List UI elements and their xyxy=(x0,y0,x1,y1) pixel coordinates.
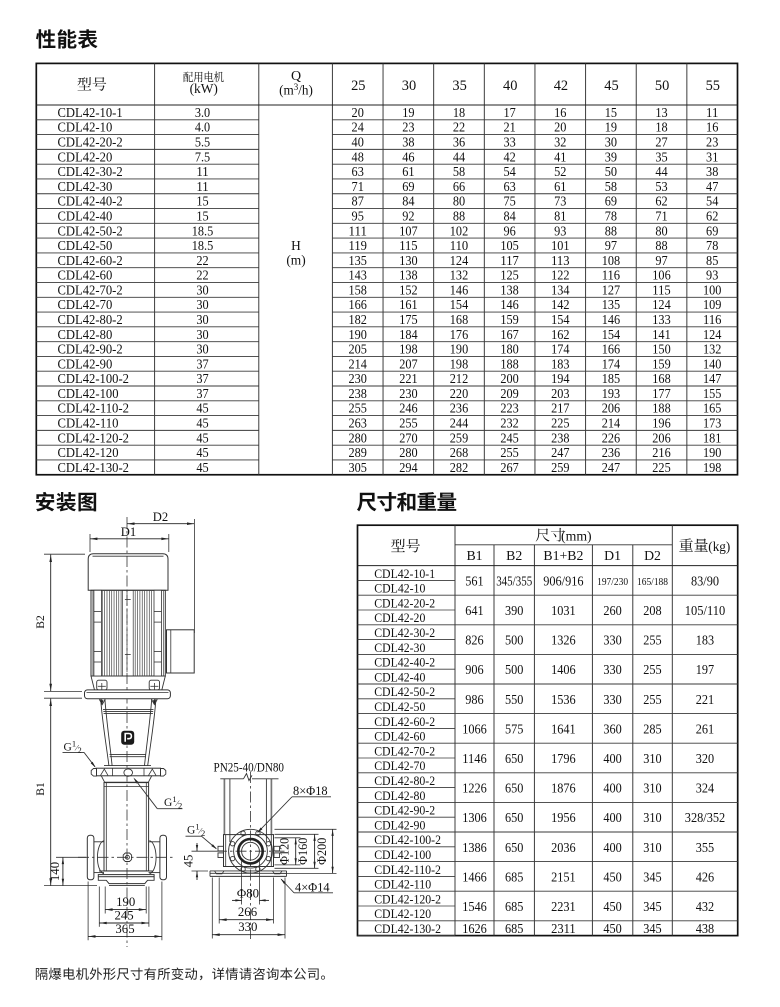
svg-text:52: 52 xyxy=(554,164,566,179)
svg-text:130: 130 xyxy=(399,253,418,268)
svg-text:73: 73 xyxy=(554,194,566,209)
svg-text:78: 78 xyxy=(706,238,718,253)
svg-text:61: 61 xyxy=(554,179,566,194)
svg-text:450: 450 xyxy=(603,899,622,914)
svg-text:185: 185 xyxy=(602,371,621,386)
svg-text:1146: 1146 xyxy=(462,751,487,766)
svg-text:42: 42 xyxy=(554,78,568,94)
svg-text:CDL42-20: CDL42-20 xyxy=(58,149,113,164)
svg-text:906: 906 xyxy=(465,662,484,677)
svg-text:100: 100 xyxy=(703,282,722,297)
svg-text:CDL42-10-1: CDL42-10-1 xyxy=(374,567,435,581)
svg-text:37: 37 xyxy=(196,356,208,371)
svg-text:282: 282 xyxy=(450,460,469,475)
svg-text:134: 134 xyxy=(551,282,570,297)
svg-text:(kW): (kW) xyxy=(190,81,218,96)
svg-text:641: 641 xyxy=(465,603,483,618)
svg-text:107: 107 xyxy=(399,223,418,238)
svg-text:161: 161 xyxy=(399,297,417,312)
svg-text:280: 280 xyxy=(349,430,368,445)
svg-text:685: 685 xyxy=(505,921,524,936)
svg-text:CDL42-50: CDL42-50 xyxy=(58,238,113,253)
svg-text:115: 115 xyxy=(399,238,418,253)
svg-text:232: 232 xyxy=(500,416,519,431)
svg-text:44: 44 xyxy=(655,164,667,179)
svg-text:247: 247 xyxy=(602,460,621,475)
svg-text:B1+B2: B1+B2 xyxy=(543,548,583,563)
svg-text:84: 84 xyxy=(503,209,515,224)
svg-text:190: 190 xyxy=(703,445,722,460)
svg-text:216: 216 xyxy=(652,445,671,460)
svg-text:124: 124 xyxy=(652,297,671,312)
svg-text:165/188: 165/188 xyxy=(637,576,668,588)
svg-text:37: 37 xyxy=(196,371,208,386)
svg-text:66: 66 xyxy=(453,179,465,194)
svg-text:154: 154 xyxy=(551,312,570,327)
svg-text:32: 32 xyxy=(554,135,566,150)
svg-text:206: 206 xyxy=(652,430,671,445)
svg-text:23: 23 xyxy=(402,120,414,135)
svg-text:CDL42-130-2: CDL42-130-2 xyxy=(374,922,441,936)
svg-text:35: 35 xyxy=(655,149,667,164)
svg-text:Φ160: Φ160 xyxy=(296,838,310,865)
svg-text:400: 400 xyxy=(603,781,622,796)
svg-text:45: 45 xyxy=(604,78,618,94)
svg-text:238: 238 xyxy=(349,386,368,401)
svg-text:30: 30 xyxy=(402,78,416,94)
svg-text:140: 140 xyxy=(703,356,722,371)
svg-text:255: 255 xyxy=(643,633,662,648)
svg-text:685: 685 xyxy=(505,869,524,884)
svg-text:141: 141 xyxy=(652,327,670,342)
svg-text:226: 226 xyxy=(602,430,621,445)
svg-text:CDL42-90-2: CDL42-90-2 xyxy=(374,804,435,818)
svg-text:267: 267 xyxy=(500,460,519,475)
svg-text:40: 40 xyxy=(503,78,517,94)
svg-text:16: 16 xyxy=(706,120,718,135)
svg-text:214: 214 xyxy=(602,416,621,431)
svg-text:CDL42-80: CDL42-80 xyxy=(374,789,425,803)
svg-text:320: 320 xyxy=(696,751,715,766)
svg-text:116: 116 xyxy=(703,312,722,327)
svg-text:D2: D2 xyxy=(644,548,661,563)
svg-text:CDL42-40-2: CDL42-40-2 xyxy=(58,194,123,209)
svg-text:650: 650 xyxy=(505,840,524,855)
svg-text:360: 360 xyxy=(603,721,622,736)
svg-text:550: 550 xyxy=(505,692,524,707)
svg-text:CDL42-70-2: CDL42-70-2 xyxy=(374,744,435,758)
svg-text:CDL42-80-2: CDL42-80-2 xyxy=(58,312,123,327)
svg-text:165: 165 xyxy=(703,401,722,416)
svg-text:93: 93 xyxy=(554,223,566,238)
svg-text:CDL42-20-2: CDL42-20-2 xyxy=(374,596,435,610)
svg-text:CDL42-60-2: CDL42-60-2 xyxy=(58,253,123,268)
svg-text:1626: 1626 xyxy=(462,921,487,936)
svg-text:177: 177 xyxy=(652,386,671,401)
svg-text:4.0: 4.0 xyxy=(195,120,210,135)
svg-text:97: 97 xyxy=(605,238,617,253)
svg-text:181: 181 xyxy=(703,430,721,445)
svg-text:2036: 2036 xyxy=(551,840,576,855)
svg-text:8×Φ18: 8×Φ18 xyxy=(293,784,328,798)
svg-text:400: 400 xyxy=(603,810,622,825)
svg-text:81: 81 xyxy=(554,209,566,224)
svg-text:CDL42-70: CDL42-70 xyxy=(374,759,425,773)
svg-text:3.0: 3.0 xyxy=(195,105,210,120)
svg-text:71: 71 xyxy=(655,209,667,224)
svg-text:CDL42-60: CDL42-60 xyxy=(58,268,113,283)
svg-text:1406: 1406 xyxy=(551,662,576,677)
svg-text:198: 198 xyxy=(450,356,469,371)
svg-text:142: 142 xyxy=(551,297,570,312)
svg-text:305: 305 xyxy=(349,460,368,475)
svg-text:1876: 1876 xyxy=(551,781,576,796)
svg-text:255: 255 xyxy=(399,416,418,431)
svg-text:18: 18 xyxy=(453,105,465,120)
svg-text:4×Φ14: 4×Φ14 xyxy=(295,880,330,894)
svg-text:5.5: 5.5 xyxy=(195,135,210,150)
svg-text:B1: B1 xyxy=(466,548,482,563)
svg-text:244: 244 xyxy=(450,416,469,431)
svg-text:180: 180 xyxy=(500,342,519,357)
svg-text:650: 650 xyxy=(505,751,524,766)
svg-text:CDL42-120-2: CDL42-120-2 xyxy=(374,892,441,906)
svg-text:18.5: 18.5 xyxy=(192,238,214,253)
svg-text:CDL42-30: CDL42-30 xyxy=(58,179,113,194)
svg-text:CDL42-100: CDL42-100 xyxy=(58,386,119,401)
svg-text:7.5: 7.5 xyxy=(195,149,210,164)
svg-text:138: 138 xyxy=(399,268,418,283)
svg-text:62: 62 xyxy=(655,194,667,209)
svg-text:1466: 1466 xyxy=(462,869,487,884)
svg-text:Φ120: Φ120 xyxy=(277,838,291,865)
svg-text:B2: B2 xyxy=(35,615,47,629)
svg-text:116: 116 xyxy=(602,268,621,283)
svg-text:95: 95 xyxy=(352,209,364,224)
svg-text:88: 88 xyxy=(453,209,465,224)
svg-text:80: 80 xyxy=(655,223,667,238)
svg-text:310: 310 xyxy=(643,810,662,825)
svg-text:330: 330 xyxy=(603,692,622,707)
svg-text:345: 345 xyxy=(643,921,662,936)
svg-text:25: 25 xyxy=(351,78,365,94)
svg-text:40: 40 xyxy=(352,135,364,150)
svg-text:270: 270 xyxy=(399,430,418,445)
svg-text:38: 38 xyxy=(706,164,718,179)
svg-text:223: 223 xyxy=(500,401,519,416)
svg-text:75: 75 xyxy=(503,194,515,209)
svg-text:140: 140 xyxy=(48,862,62,881)
svg-text:22: 22 xyxy=(196,268,208,283)
svg-text:58: 58 xyxy=(453,164,465,179)
svg-text:561: 561 xyxy=(465,573,483,588)
svg-text:CDL42-70-2: CDL42-70-2 xyxy=(58,282,123,297)
svg-text:906/916: 906/916 xyxy=(543,573,584,588)
svg-text:61: 61 xyxy=(402,164,414,179)
svg-text:650: 650 xyxy=(505,781,524,796)
svg-text:205: 205 xyxy=(349,342,368,357)
svg-text:426: 426 xyxy=(696,869,715,884)
svg-text:196: 196 xyxy=(652,416,671,431)
svg-text:168: 168 xyxy=(652,371,671,386)
svg-text:15: 15 xyxy=(196,194,208,209)
svg-text:214: 214 xyxy=(349,356,368,371)
svg-text:175: 175 xyxy=(399,312,418,327)
svg-text:188: 188 xyxy=(500,356,519,371)
svg-text:111: 111 xyxy=(349,223,367,238)
svg-text:133: 133 xyxy=(652,312,671,327)
svg-text:CDL42-90: CDL42-90 xyxy=(58,356,113,371)
svg-text:167: 167 xyxy=(500,327,519,342)
svg-text:365: 365 xyxy=(115,922,134,936)
svg-text:198: 198 xyxy=(399,342,418,357)
svg-text:45: 45 xyxy=(196,430,208,445)
svg-text:166: 166 xyxy=(602,342,621,357)
svg-text:54: 54 xyxy=(706,194,718,209)
svg-text:575: 575 xyxy=(505,721,524,736)
svg-text:826: 826 xyxy=(465,633,484,648)
svg-text:685: 685 xyxy=(505,899,524,914)
svg-text:193: 193 xyxy=(602,386,621,401)
svg-text:183: 183 xyxy=(696,633,715,648)
svg-text:159: 159 xyxy=(652,356,671,371)
svg-text:650: 650 xyxy=(505,810,524,825)
svg-text:168: 168 xyxy=(450,312,469,327)
svg-text:152: 152 xyxy=(399,282,418,297)
svg-text:345: 345 xyxy=(643,899,662,914)
svg-text:19: 19 xyxy=(605,120,617,135)
svg-text:330: 330 xyxy=(603,633,622,648)
svg-text:16: 16 xyxy=(554,105,566,120)
svg-text:190: 190 xyxy=(450,342,469,357)
svg-text:260: 260 xyxy=(603,603,622,618)
svg-text:B1: B1 xyxy=(35,782,47,796)
svg-text:166: 166 xyxy=(349,297,368,312)
svg-text:184: 184 xyxy=(399,327,418,342)
svg-text:138: 138 xyxy=(500,282,519,297)
svg-text:46: 46 xyxy=(402,149,414,164)
svg-text:22: 22 xyxy=(453,120,465,135)
svg-text:500: 500 xyxy=(505,633,524,648)
svg-text:83/90: 83/90 xyxy=(691,573,719,588)
svg-text:119: 119 xyxy=(349,238,368,253)
svg-text:CDL42-130-2: CDL42-130-2 xyxy=(58,460,130,475)
svg-text:22: 22 xyxy=(196,253,208,268)
svg-text:D1: D1 xyxy=(121,525,136,539)
svg-text:CDL42-110-2: CDL42-110-2 xyxy=(374,863,441,877)
svg-text:CDL42-60: CDL42-60 xyxy=(374,730,425,744)
svg-text:190: 190 xyxy=(116,895,135,909)
svg-text:33: 33 xyxy=(503,135,515,150)
svg-text:146: 146 xyxy=(500,297,519,312)
svg-text:117: 117 xyxy=(500,253,519,268)
svg-text:(kg): (kg) xyxy=(708,539,730,554)
svg-text:1226: 1226 xyxy=(462,781,487,796)
svg-text:400: 400 xyxy=(603,751,622,766)
svg-text:CDL42-120: CDL42-120 xyxy=(58,445,119,460)
svg-text:146: 146 xyxy=(602,312,621,327)
svg-text:62: 62 xyxy=(706,209,718,224)
svg-text:30: 30 xyxy=(196,297,208,312)
svg-text:135: 135 xyxy=(349,253,368,268)
svg-text:CDL42-80-2: CDL42-80-2 xyxy=(374,774,435,788)
svg-text:CDL42-90-2: CDL42-90-2 xyxy=(58,342,123,357)
svg-text:2311: 2311 xyxy=(551,921,576,936)
svg-text:35: 35 xyxy=(452,78,466,94)
svg-text:20: 20 xyxy=(554,120,566,135)
svg-text:(mm): (mm) xyxy=(561,528,592,544)
svg-text:328/352: 328/352 xyxy=(685,810,725,825)
svg-text:150: 150 xyxy=(652,342,671,357)
svg-text:CDL42-100-2: CDL42-100-2 xyxy=(374,833,441,847)
svg-text:87: 87 xyxy=(352,194,364,209)
svg-text:246: 246 xyxy=(399,401,418,416)
svg-text:Φ80: Φ80 xyxy=(237,886,259,900)
svg-text:CDL42-70: CDL42-70 xyxy=(58,297,113,312)
svg-text:30: 30 xyxy=(196,282,208,297)
svg-text:245: 245 xyxy=(114,908,133,922)
svg-text:212: 212 xyxy=(450,371,469,386)
svg-text:330: 330 xyxy=(603,662,622,677)
svg-text:225: 225 xyxy=(551,416,570,431)
svg-text:207: 207 xyxy=(399,356,418,371)
svg-text:97: 97 xyxy=(655,253,667,268)
svg-text:324: 324 xyxy=(696,781,715,796)
svg-text:294: 294 xyxy=(399,460,418,475)
svg-text:101: 101 xyxy=(551,238,569,253)
svg-text:CDL42-30: CDL42-30 xyxy=(374,641,425,655)
svg-text:238: 238 xyxy=(551,430,570,445)
svg-text:(m): (m) xyxy=(286,252,305,267)
svg-text:162: 162 xyxy=(551,327,570,342)
svg-text:CDL42-30-2: CDL42-30-2 xyxy=(58,164,123,179)
svg-text:84: 84 xyxy=(402,194,414,209)
svg-text:21: 21 xyxy=(503,120,515,135)
svg-text:11: 11 xyxy=(196,164,208,179)
svg-text:44: 44 xyxy=(453,149,465,164)
svg-text:30: 30 xyxy=(196,312,208,327)
svg-text:88: 88 xyxy=(605,223,617,238)
svg-text:CDL42-20-2: CDL42-20-2 xyxy=(58,135,123,150)
svg-text:450: 450 xyxy=(603,869,622,884)
svg-text:27: 27 xyxy=(655,135,667,150)
svg-text:D1: D1 xyxy=(604,548,621,563)
svg-text:30: 30 xyxy=(605,135,617,150)
svg-text:209: 209 xyxy=(500,386,519,401)
svg-text:80: 80 xyxy=(453,194,465,209)
svg-text:1641: 1641 xyxy=(551,721,576,736)
svg-text:15: 15 xyxy=(196,209,208,224)
svg-text:1536: 1536 xyxy=(551,692,576,707)
svg-text:261: 261 xyxy=(696,721,714,736)
svg-text:37: 37 xyxy=(196,386,208,401)
svg-text:194: 194 xyxy=(551,371,570,386)
svg-text:1386: 1386 xyxy=(462,840,487,855)
svg-text:355: 355 xyxy=(696,840,715,855)
svg-text:154: 154 xyxy=(450,297,469,312)
svg-text:CDL42-50-2: CDL42-50-2 xyxy=(58,223,123,238)
svg-text:245: 245 xyxy=(500,430,519,445)
svg-text:236: 236 xyxy=(450,401,469,416)
svg-text:115: 115 xyxy=(652,282,671,297)
svg-text:182: 182 xyxy=(349,312,368,327)
svg-text:159: 159 xyxy=(500,312,519,327)
svg-text:20: 20 xyxy=(352,105,364,120)
svg-text:266: 266 xyxy=(238,905,258,919)
svg-text:113: 113 xyxy=(551,253,570,268)
svg-text:18.5: 18.5 xyxy=(192,223,214,238)
svg-text:390: 390 xyxy=(505,603,524,618)
svg-text:2231: 2231 xyxy=(551,899,576,914)
svg-text:122: 122 xyxy=(551,268,570,283)
svg-text:124: 124 xyxy=(450,253,469,268)
svg-text:63: 63 xyxy=(352,164,364,179)
svg-text:50: 50 xyxy=(655,78,669,94)
svg-text:221: 221 xyxy=(399,371,417,386)
svg-text:CDL42-120-2: CDL42-120-2 xyxy=(58,430,130,445)
svg-text:289: 289 xyxy=(349,445,368,460)
svg-text:108: 108 xyxy=(602,253,621,268)
svg-text:125: 125 xyxy=(500,268,519,283)
svg-text:18: 18 xyxy=(655,120,667,135)
svg-text:45: 45 xyxy=(196,460,208,475)
svg-text:1326: 1326 xyxy=(551,633,576,648)
svg-text:197: 197 xyxy=(696,662,715,677)
svg-text:230: 230 xyxy=(349,371,368,386)
svg-text:132: 132 xyxy=(450,268,469,283)
svg-text:280: 280 xyxy=(399,445,418,460)
svg-text:158: 158 xyxy=(349,282,368,297)
svg-text:CDL42-10-1: CDL42-10-1 xyxy=(58,105,123,120)
svg-text:CDL42-80: CDL42-80 xyxy=(58,327,113,342)
svg-text:400: 400 xyxy=(603,840,622,855)
svg-text:24: 24 xyxy=(352,120,364,135)
svg-text:110: 110 xyxy=(450,238,469,253)
svg-text:259: 259 xyxy=(450,430,469,445)
svg-text:310: 310 xyxy=(643,840,662,855)
svg-text:127: 127 xyxy=(602,282,621,297)
svg-text:69: 69 xyxy=(402,179,414,194)
svg-text:15: 15 xyxy=(605,105,617,120)
svg-text:Φ200: Φ200 xyxy=(315,838,329,865)
svg-text:310: 310 xyxy=(643,751,662,766)
svg-text:1546: 1546 xyxy=(462,899,487,914)
svg-text:109: 109 xyxy=(703,297,722,312)
svg-text:263: 263 xyxy=(349,416,368,431)
svg-text:CDL42-40-2: CDL42-40-2 xyxy=(374,656,435,670)
svg-text:188: 188 xyxy=(652,401,671,416)
svg-text:217: 217 xyxy=(551,401,570,416)
svg-text:23: 23 xyxy=(706,135,718,150)
svg-text:92: 92 xyxy=(402,209,414,224)
svg-text:CDL42-50-2: CDL42-50-2 xyxy=(374,685,435,699)
svg-text:78: 78 xyxy=(605,209,617,224)
svg-text:285: 285 xyxy=(643,721,662,736)
svg-text:206: 206 xyxy=(602,401,621,416)
svg-text:CDL42-110-2: CDL42-110-2 xyxy=(58,401,130,416)
svg-text:CDL42-120: CDL42-120 xyxy=(374,907,431,921)
svg-text:230: 230 xyxy=(399,386,418,401)
svg-text:225: 225 xyxy=(652,460,671,475)
svg-text:D2: D2 xyxy=(153,510,168,524)
svg-text:31: 31 xyxy=(706,149,718,164)
svg-text:147: 147 xyxy=(703,371,722,386)
svg-text:132: 132 xyxy=(703,342,722,357)
svg-text:174: 174 xyxy=(602,356,621,371)
svg-text:CDL42-100: CDL42-100 xyxy=(374,848,431,862)
svg-text:CDL42-90: CDL42-90 xyxy=(374,818,425,832)
svg-text:96: 96 xyxy=(503,223,515,238)
